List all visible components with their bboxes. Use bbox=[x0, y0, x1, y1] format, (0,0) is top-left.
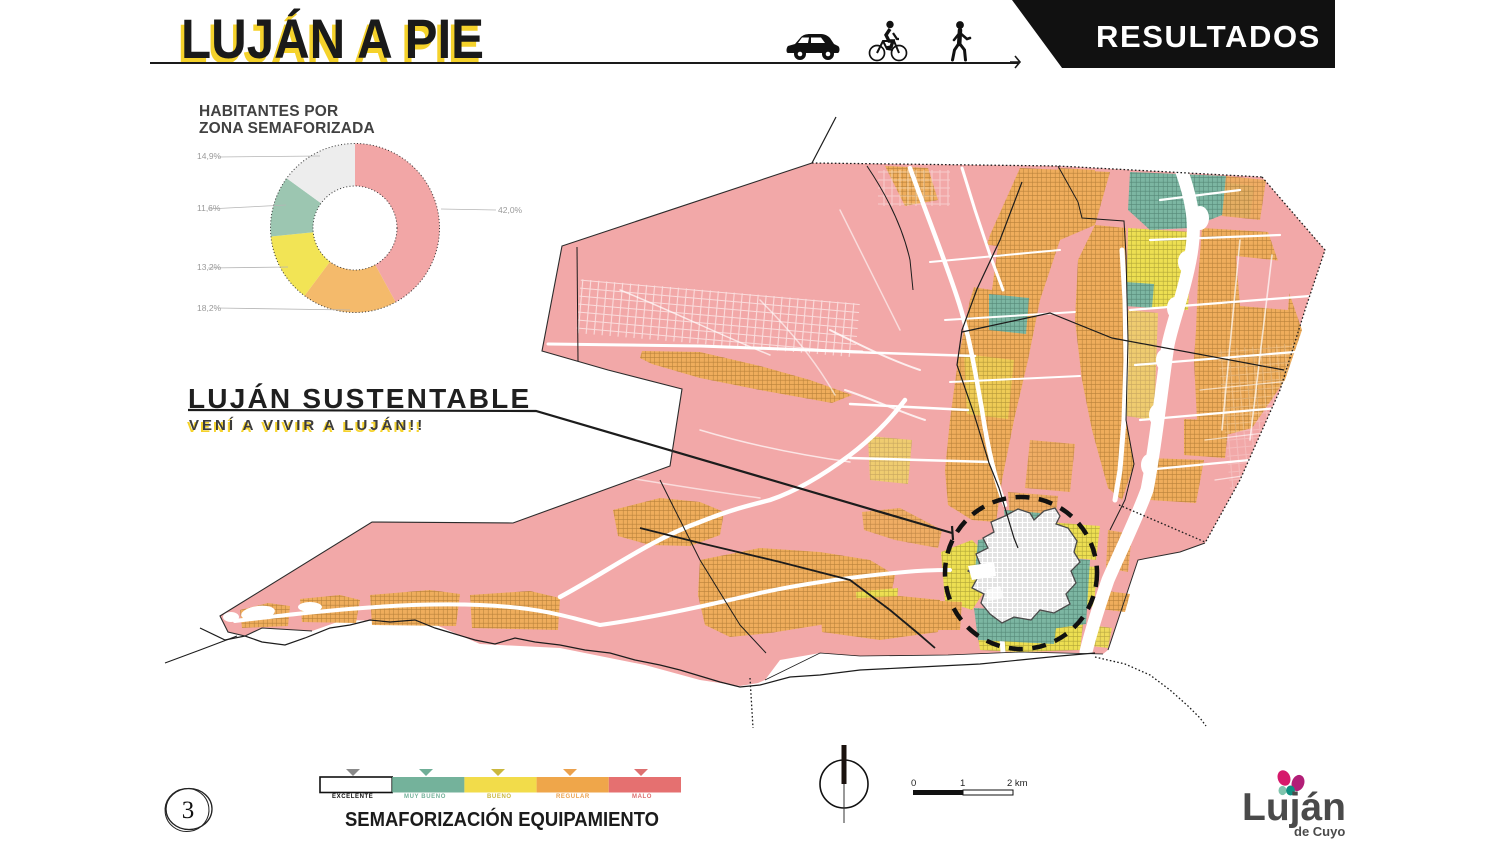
svg-text:3: 3 bbox=[182, 797, 195, 824]
svg-text:0: 0 bbox=[911, 778, 916, 789]
svg-text:2 km: 2 km bbox=[1007, 778, 1028, 789]
svg-text:1: 1 bbox=[960, 778, 965, 789]
